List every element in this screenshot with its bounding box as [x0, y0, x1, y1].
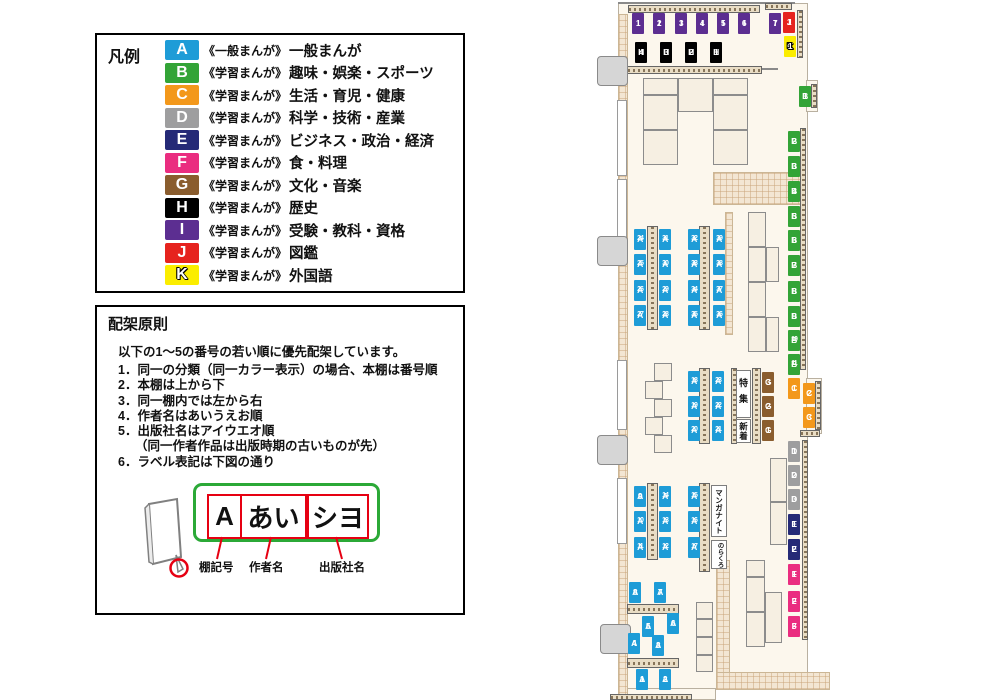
- legend-category: 趣味・娯楽・スポーツ: [289, 62, 434, 83]
- shelf-label-A10: A10: [634, 511, 646, 532]
- legend-row: E《学習まんが》ビジネス・政治・経済: [165, 129, 434, 152]
- shelf-label-G2: G2: [762, 396, 774, 417]
- shelf-label-text: 5: [792, 212, 796, 221]
- shelf-label-text: 24: [637, 235, 643, 244]
- shelf-label-A32: A32: [688, 229, 700, 250]
- shelf-label-text: 7: [792, 261, 796, 270]
- door: [597, 236, 628, 266]
- shelf-label-text: 8: [792, 287, 796, 296]
- shelf-label-A20: A20: [688, 420, 700, 441]
- legend-tag: 《学習まんが》: [203, 222, 287, 239]
- shelf-label-text: 28: [662, 311, 668, 320]
- shelf-label-I3: I3: [675, 13, 687, 34]
- shelf-label-text: 2: [807, 389, 811, 398]
- table-shelf-cell: [746, 612, 765, 647]
- shelf-label-C3: C3: [803, 407, 815, 428]
- shelf-label-G3: G3: [762, 372, 774, 393]
- bookshelf-strip: [647, 226, 658, 330]
- shelf-label-A23: A23: [712, 371, 724, 392]
- bookshelf-strip: [699, 483, 710, 572]
- legend-category: 一般まんが: [289, 40, 362, 61]
- map-wall: [725, 212, 733, 335]
- shelf-label-D3: D3: [788, 489, 800, 510]
- shelf-label-text: 1: [787, 18, 791, 27]
- wall-window: [617, 360, 627, 430]
- shelf-label-text: 27: [637, 311, 643, 320]
- shelf-label-I1: I1: [632, 13, 644, 34]
- legend-chip: A: [165, 40, 199, 60]
- legend-chip: B: [165, 63, 199, 83]
- shelf-label-text: 9: [638, 492, 642, 501]
- shelf-label-D2: D2: [788, 465, 800, 486]
- table-shelf-cell: [678, 78, 713, 112]
- table-shelf-cell: [746, 560, 765, 577]
- shelf-label-text: 3: [807, 413, 811, 422]
- shelf-label-text: 1: [636, 19, 640, 28]
- legend-tag: 《学習まんが》: [203, 154, 287, 171]
- shelf-label-text: 2: [689, 48, 693, 57]
- shelf-label-text: 16: [691, 517, 697, 526]
- shelf-label-text: 1: [714, 48, 718, 57]
- shelf-label-A31: A31: [659, 229, 671, 250]
- shelf-label-F1: F1: [788, 564, 800, 585]
- shelf-label-text: 3: [679, 19, 683, 28]
- shelf-label-A8: A8: [629, 582, 641, 603]
- principle-item-note: （同一作者作品は出版時期の古いものが先）: [118, 439, 437, 454]
- legend-tag: 《学習まんが》: [203, 87, 287, 104]
- shelf-label-text: 12: [662, 543, 668, 552]
- shelf-label-D1: D1: [788, 441, 800, 462]
- shelf-label-text: 14: [662, 492, 668, 501]
- legend-category: 図鑑: [289, 242, 318, 263]
- shelf-label-B3: B3: [788, 156, 800, 177]
- shelf-label-text: 4: [700, 19, 704, 28]
- bookshelf-strip: [647, 483, 658, 560]
- table-shelf-cell: [645, 417, 663, 435]
- bookshelf-strip: [811, 84, 817, 108]
- shelf-label-text: 38: [716, 260, 722, 269]
- shelf-label-A11: A11: [634, 537, 646, 558]
- caption-shelf-code: 棚記号: [199, 559, 234, 575]
- principles-title: 配架原則: [108, 313, 168, 334]
- shelf-label-A39: A39: [713, 229, 725, 250]
- legend-tag: 《一般まんが》: [203, 42, 287, 59]
- shelf-label-I5: I5: [717, 13, 729, 34]
- shelf-label-text: 6: [671, 619, 675, 628]
- bookshelf-strip: [752, 368, 761, 444]
- shelf-label-text: 23: [715, 377, 721, 386]
- table-shelf-cell: [770, 458, 787, 502]
- shelf-label-text: 33: [691, 260, 697, 269]
- shelf-label-text: 5: [721, 19, 725, 28]
- tag-shelf-code: A: [207, 494, 242, 539]
- shelf-label-F2: F2: [788, 591, 800, 612]
- legend-tag: 《学習まんが》: [203, 64, 287, 81]
- table-shelf-cell: [654, 399, 672, 417]
- legend-category: 科学・技術・産業: [289, 107, 405, 128]
- legend-tag: 《学習まんが》: [203, 132, 287, 149]
- shelf-label-text: 30: [662, 260, 668, 269]
- page: { "legend": { "title": "凡例", "items": [ …: [0, 0, 1000, 700]
- legend-chip: K: [165, 265, 199, 285]
- legend-category: 外国語: [289, 265, 333, 286]
- bookshelf-strip: [610, 694, 692, 700]
- legend-row: F《学習まんが》食・料理: [165, 152, 434, 175]
- shelf-label-A30: A30: [659, 254, 671, 275]
- legend-rows: A《一般まんが》一般まんがB《学習まんが》趣味・娯楽・スポーツC《学習まんが》生…: [165, 39, 434, 287]
- legend-tag: 《学習まんが》: [203, 177, 287, 194]
- special-section-box: マンガナイト: [711, 485, 727, 537]
- shelf-label-text: 25: [637, 260, 643, 269]
- table-shelf-cell: [766, 317, 779, 352]
- shelf-label-text: 3: [656, 641, 660, 650]
- shelf-label-text: 1: [788, 42, 792, 51]
- shelf-label-A37: A37: [713, 280, 725, 301]
- bookshelf-strip: [627, 658, 679, 668]
- principles-list: 1．同一の分類（同一カラー表示）の場合、本棚は番号順2．本棚は上から下3．同一棚…: [118, 363, 437, 470]
- shelf-label-H1: H1: [710, 42, 722, 63]
- legend-chip: D: [165, 108, 199, 128]
- shelf-label-text: 32: [691, 235, 697, 244]
- table-shelf-cell: [748, 212, 766, 247]
- shelf-label-A26: A26: [634, 280, 646, 301]
- legend-tag: 《学習まんが》: [203, 199, 287, 216]
- shelf-label-text: 35: [691, 311, 697, 320]
- principle-item: 5．出版社名はアイウエオ順: [118, 424, 437, 439]
- bookshelf-strip: [802, 440, 808, 640]
- table-shelf-cell: [643, 95, 678, 130]
- legend-row: C《学習まんが》生活・育児・健康: [165, 84, 434, 107]
- shelf-label-A15: A15: [688, 486, 700, 507]
- bookshelf-strip: [699, 226, 710, 330]
- shelf-label-text: 1: [792, 384, 796, 393]
- shelf-label-A5: A5: [642, 616, 654, 637]
- legend-chip: I: [165, 220, 199, 240]
- table-shelf-cell: [696, 602, 713, 619]
- shelf-label-text: 1: [792, 447, 796, 456]
- shelf-label-text: 15: [691, 492, 697, 501]
- shelf-label-B5: B5: [788, 206, 800, 227]
- shelf-label-A3: A3: [652, 635, 664, 656]
- shelf-label-text: 5: [646, 622, 650, 631]
- legend-chip: C: [165, 85, 199, 105]
- tag-publisher: シヨ: [307, 494, 369, 539]
- shelf-label-text: 6: [792, 236, 796, 245]
- table-shelf-cell: [746, 577, 765, 612]
- shelf-label-text: 11: [637, 543, 642, 552]
- legend-chip: H: [165, 198, 199, 218]
- shelf-label-C2: C2: [803, 383, 815, 404]
- bookshelf-strip: [765, 3, 792, 10]
- shelf-label-A14: A14: [659, 486, 671, 507]
- shelf-label-E2: E2: [788, 539, 800, 560]
- shelf-label-A38: A38: [713, 254, 725, 275]
- shelf-label-A24: A24: [634, 229, 646, 250]
- shelf-label-A34: A34: [688, 280, 700, 301]
- legend-category: ビジネス・政治・経済: [289, 130, 434, 151]
- shelf-label-text: 3: [792, 162, 796, 171]
- shelf-label-H4: H4: [635, 42, 647, 63]
- shelf-label-text: 3: [664, 48, 668, 57]
- legend-row: A《一般まんが》一般まんが: [165, 39, 434, 62]
- principle-item: 3．同一棚内では左から右: [118, 394, 437, 409]
- shelf-label-text: 20: [691, 426, 697, 435]
- shelf-label-A17: A17: [688, 537, 700, 558]
- shelf-label-A2: A2: [659, 669, 671, 690]
- legend-row: G《学習まんが》文化・音楽: [165, 174, 434, 197]
- legend-row: I《学習まんが》受験・教科・資格: [165, 219, 434, 242]
- shelf-label-I7: I7: [769, 13, 781, 34]
- shelf-label-text: 11: [791, 360, 796, 369]
- shelf-label-A29: A29: [659, 280, 671, 301]
- shelf-label-text: 2: [766, 402, 770, 411]
- shelf-label-text: 1: [766, 426, 770, 435]
- shelf-label-text: 2: [792, 471, 796, 480]
- shelf-label-H3: H3: [660, 42, 672, 63]
- shelf-label-A36: A36: [713, 305, 725, 326]
- door: [597, 56, 628, 86]
- shelf-label-A18: A18: [688, 371, 700, 392]
- legend-tag: 《学習まんが》: [203, 109, 287, 126]
- shelf-label-text: 18: [691, 377, 697, 386]
- legend-row: H《学習まんが》歴史: [165, 197, 434, 220]
- table-shelf-cell: [766, 247, 779, 282]
- shelf-label-text: 3: [792, 622, 796, 631]
- legend-title: 凡例: [108, 43, 140, 67]
- shelf-label-text: 1: [792, 570, 796, 579]
- bookshelf-strip: [627, 66, 762, 74]
- caption-author: 作者名: [249, 559, 284, 575]
- wall-window: [617, 179, 627, 242]
- table-shelf-cell: [713, 78, 748, 95]
- shelf-label-A13: A13: [659, 511, 671, 532]
- shelf-label-I4: I4: [696, 13, 708, 34]
- legend-row: D《学習まんが》科学・技術・産業: [165, 107, 434, 130]
- shelf-label-text: 29: [662, 286, 668, 295]
- shelf-label-J1: J1: [783, 12, 795, 33]
- shelf-label-A33: A33: [688, 254, 700, 275]
- table-shelf-cell: [713, 95, 748, 130]
- bookshelf-strip: [628, 5, 760, 13]
- shelf-label-A12: A12: [659, 537, 671, 558]
- wall-window: [617, 100, 627, 176]
- shelf-label-text: 2: [792, 137, 796, 146]
- shelf-label-text: 1: [640, 675, 644, 684]
- shelf-label-H2: H2: [685, 42, 697, 63]
- floor-map: 特集新着マンガナイトのらくろI1I2I3I4I5I6I7J1K1H4H3H2H1…: [595, 0, 830, 700]
- legend-chip: E: [165, 130, 199, 150]
- shelf-label-text: 4: [792, 187, 796, 196]
- shelf-label-text: 8: [633, 588, 637, 597]
- shelf-label-text: 10: [791, 336, 797, 345]
- shelf-label-text: 2: [657, 19, 661, 28]
- wall-window: [617, 478, 627, 544]
- shelf-label-text: 4: [639, 48, 643, 57]
- shelf-label-B1: B1: [799, 86, 811, 107]
- legend-row: J《学習まんが》図鑑: [165, 242, 434, 265]
- legend-row: B《学習まんが》趣味・娯楽・スポーツ: [165, 62, 434, 85]
- map-wall: [716, 672, 830, 690]
- principle-item: 1．同一の分類（同一カラー表示）の場合、本棚は番号順: [118, 363, 437, 378]
- legend-category: 文化・音楽: [289, 175, 362, 196]
- shelf-label-A28: A28: [659, 305, 671, 326]
- shelf-label-A21: A21: [712, 420, 724, 441]
- shelf-label-text: 39: [716, 235, 722, 244]
- principle-item: 6．ラベル表記は下図の通り: [118, 455, 437, 470]
- shelf-label-B6: B6: [788, 230, 800, 251]
- shelf-label-text: 26: [637, 286, 643, 295]
- shelf-label-A4: A4: [628, 633, 640, 654]
- shelf-label-text: 36: [716, 311, 722, 320]
- shelf-label-B8: B8: [788, 281, 800, 302]
- shelf-label-text: 3: [766, 378, 770, 387]
- principle-item: 4．作者名はあいうえお順: [118, 409, 437, 424]
- shelf-label-A22: A22: [712, 396, 724, 417]
- caption-publisher: 出版社名: [319, 559, 365, 575]
- shelf-label-text: 1: [792, 520, 796, 529]
- table-shelf-cell: [748, 247, 766, 282]
- legend-chip: J: [165, 243, 199, 263]
- shelf-label-text: 1: [803, 92, 807, 101]
- legend-category: 食・料理: [289, 152, 347, 173]
- shelf-label-text: 2: [792, 597, 796, 606]
- legend-tag: 《学習まんが》: [203, 244, 287, 261]
- principles-panel: 配架原則 以下の1～5の番号の若い順に優先配架しています。 1．同一の分類（同一…: [95, 305, 465, 615]
- shelf-label-A6: A6: [667, 613, 679, 634]
- table-shelf-cell: [713, 130, 748, 165]
- shelf-label-A1: A1: [636, 669, 648, 690]
- bookshelf-strip: [797, 10, 803, 58]
- legend-category: 受験・教科・資格: [289, 220, 405, 241]
- table-shelf-cell: [748, 282, 766, 317]
- table-shelf-cell: [654, 363, 672, 381]
- book-icon: [135, 495, 191, 591]
- shelf-label-A25: A25: [634, 254, 646, 275]
- shelf-label-A9: A9: [634, 486, 646, 507]
- table-shelf-cell: [765, 592, 782, 643]
- door: [600, 624, 631, 654]
- shelf-label-I2: I2: [653, 13, 665, 34]
- principles-intro: 以下の1～5の番号の若い順に優先配架しています。: [118, 341, 405, 360]
- map-wall: [716, 560, 730, 676]
- tag-author: あい: [240, 494, 307, 539]
- shelf-label-K1: K1: [784, 36, 796, 57]
- table-shelf-cell: [645, 381, 663, 399]
- door: [597, 435, 628, 465]
- legend-category: 歴史: [289, 197, 318, 218]
- shelf-label-F3: F3: [788, 616, 800, 637]
- shelf-label-text: 4: [632, 639, 636, 648]
- special-section-box: のらくろ: [711, 540, 727, 569]
- legend-panel: 凡例 A《一般まんが》一般まんがB《学習まんが》趣味・娯楽・スポーツC《学習まん…: [95, 33, 465, 293]
- legend-category: 生活・育児・健康: [289, 85, 405, 106]
- shelf-label-B4: B4: [788, 181, 800, 202]
- tag-frame: [193, 483, 380, 542]
- shelf-label-text: 19: [691, 402, 697, 411]
- shelf-label-text: 34: [691, 286, 697, 295]
- shelf-label-A16: A16: [688, 511, 700, 532]
- shelf-label-B10: B10: [788, 330, 800, 351]
- table-shelf-cell: [696, 655, 713, 672]
- legend-chip: G: [165, 175, 199, 195]
- principle-item: 2．本棚は上から下: [118, 378, 437, 393]
- shelf-label-A35: A35: [688, 305, 700, 326]
- bookshelf-strip: [815, 381, 821, 430]
- table-shelf-cell: [654, 435, 672, 453]
- table-shelf-cell: [770, 502, 787, 545]
- shelf-label-C1: C1: [788, 378, 800, 399]
- legend-tag: 《学習まんが》: [203, 267, 287, 284]
- bookshelf-strip: [699, 368, 710, 444]
- shelf-label-B9: B9: [788, 306, 800, 327]
- table-shelf-cell: [748, 317, 766, 352]
- shelf-label-A27: A27: [634, 305, 646, 326]
- shelf-label-text: 31: [662, 235, 668, 244]
- shelf-label-I6: I6: [738, 13, 750, 34]
- shelf-label-text: 17: [691, 543, 697, 552]
- shelf-label-G1: G1: [762, 420, 774, 441]
- table-shelf-cell: [696, 619, 713, 637]
- shelf-label-B7: B7: [788, 255, 800, 276]
- bookshelf-strip: [800, 430, 820, 437]
- legend-chip: F: [165, 153, 199, 173]
- shelf-label-A7: A7: [654, 582, 666, 603]
- legend-row: K《学習まんが》外国語: [165, 264, 434, 287]
- shelf-label-text: 21: [715, 426, 721, 435]
- bookshelf-strip: [800, 128, 806, 370]
- table-shelf-cell: [643, 130, 678, 165]
- shelf-label-text: 10: [637, 517, 643, 526]
- shelf-label-text: 13: [662, 517, 668, 526]
- special-section-box: 特集: [736, 370, 751, 418]
- shelf-label-text: 37: [716, 286, 722, 295]
- shelf-label-text: 7: [658, 588, 662, 597]
- shelf-label-text: 7: [773, 19, 777, 28]
- shelf-label-A19: A19: [688, 396, 700, 417]
- shelf-label-text: 2: [663, 675, 667, 684]
- shelf-label-text: 22: [715, 402, 721, 411]
- shelf-label-text: 6: [742, 19, 746, 28]
- shelf-label-E1: E1: [788, 514, 800, 535]
- shelf-label-B11: B11: [788, 354, 800, 375]
- shelf-label-text: 2: [792, 545, 796, 554]
- table-shelf-cell: [643, 78, 678, 95]
- table-shelf-cell: [696, 637, 713, 655]
- shelf-label-text: 9: [792, 312, 796, 321]
- shelf-label-B2: B2: [788, 131, 800, 152]
- special-section-box: 新着: [736, 419, 751, 443]
- shelf-label-text: 3: [792, 495, 796, 504]
